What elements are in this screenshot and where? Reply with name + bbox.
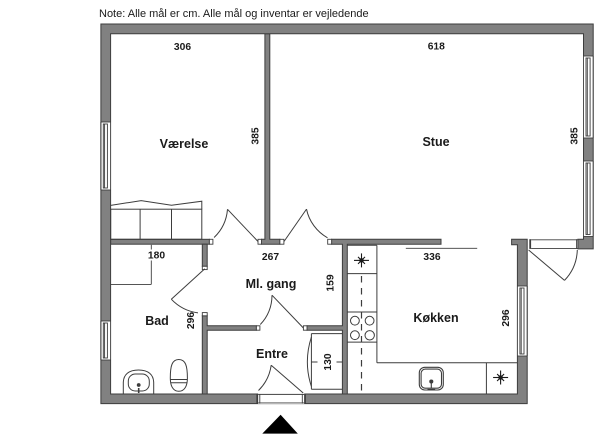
- svg-text:Stue: Stue: [422, 135, 449, 149]
- svg-text:Note: Alle mål er cm. Alle mål: Note: Alle mål er cm. Alle mål og invent…: [99, 8, 369, 20]
- svg-text:Ml. gang: Ml. gang: [246, 277, 297, 291]
- svg-text:296: 296: [186, 312, 197, 329]
- svg-text:Køkken: Køkken: [413, 311, 458, 325]
- svg-text:296: 296: [501, 309, 512, 326]
- svg-text:385: 385: [251, 127, 262, 144]
- svg-text:306: 306: [174, 42, 191, 53]
- svg-text:130: 130: [323, 353, 334, 370]
- svg-text:336: 336: [423, 252, 440, 263]
- svg-text:180: 180: [148, 251, 165, 262]
- svg-text:Værelse: Værelse: [160, 137, 209, 151]
- svg-text:159: 159: [326, 274, 337, 291]
- svg-text:Bad: Bad: [145, 314, 169, 328]
- svg-text:Entre: Entre: [256, 347, 288, 361]
- svg-text:618: 618: [428, 42, 445, 53]
- svg-text:385: 385: [569, 127, 580, 144]
- svg-text:267: 267: [262, 252, 279, 263]
